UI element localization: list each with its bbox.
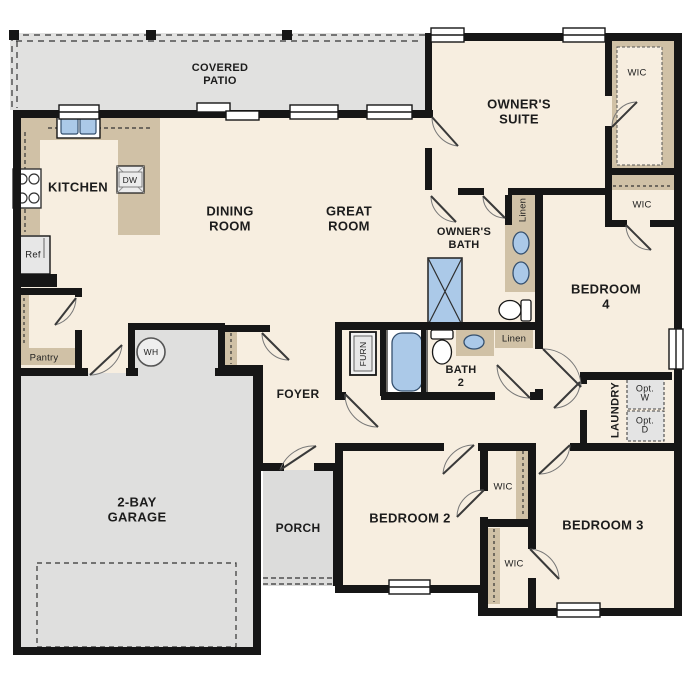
room-label-bath2: BATH 2 bbox=[446, 364, 477, 390]
floor-plan-drawing bbox=[0, 0, 687, 687]
owners-suite-window-2 bbox=[563, 28, 605, 42]
room-label-dining-room: DINING ROOM bbox=[206, 204, 253, 235]
room-label-great-room: GREAT ROOM bbox=[326, 204, 372, 235]
bath2-toilet-icon bbox=[431, 330, 453, 364]
room-label-bedroom2: BEDROOM 2 bbox=[369, 510, 450, 525]
label-refrigerator: Ref bbox=[25, 249, 40, 260]
bedroom4-window bbox=[669, 329, 683, 369]
room-label-foyer: FOYER bbox=[277, 387, 320, 401]
label-opt-washer: Opt. W bbox=[636, 385, 654, 404]
room-label-garage: 2-BAY GARAGE bbox=[108, 495, 167, 526]
bath2-sink-icon bbox=[464, 335, 484, 349]
owner-toilet-icon bbox=[499, 300, 531, 321]
kitchen-window bbox=[59, 105, 99, 119]
room-label-owners-suite: OWNER'S SUITE bbox=[487, 97, 551, 128]
room-label-bedroom3: BEDROOM 3 bbox=[562, 517, 643, 532]
room-label-covered-patio: COVERED PATIO bbox=[192, 62, 249, 88]
owners-suite-window-1 bbox=[431, 28, 464, 42]
room-label-kitchen: KITCHEN bbox=[48, 179, 108, 194]
room-label-laundry: LAUNDRY bbox=[610, 382, 623, 438]
shower-icon bbox=[428, 258, 462, 325]
label-dishwasher: DW bbox=[123, 175, 138, 185]
label-linen-owner: Linen bbox=[517, 198, 528, 222]
great-room-window-2 bbox=[367, 105, 412, 119]
label-wic-bedroom2: WIC bbox=[493, 481, 512, 492]
floor-plan: COVERED PATIO KITCHEN DINING ROOM GREAT … bbox=[0, 0, 687, 687]
room-label-porch: PORCH bbox=[276, 521, 321, 535]
label-wic-owner: WIC bbox=[627, 67, 646, 78]
label-furnace: FURN bbox=[358, 342, 368, 367]
label-wic-bedroom3: WIC bbox=[504, 558, 523, 569]
great-room-window-1 bbox=[290, 105, 338, 119]
bedroom2-window bbox=[389, 580, 430, 594]
room-label-owners-bath: OWNER'S BATH bbox=[437, 226, 491, 252]
label-linen-bath2: Linen bbox=[502, 333, 526, 344]
bedroom3-window bbox=[557, 603, 600, 617]
label-wic-bedroom4: WIC bbox=[632, 199, 651, 210]
label-opt-dryer: Opt. D bbox=[636, 417, 654, 436]
label-water-heater: WH bbox=[144, 347, 159, 357]
room-label-bedroom4: BEDROOM 4 bbox=[566, 282, 647, 313]
label-pantry: Pantry bbox=[30, 352, 59, 363]
